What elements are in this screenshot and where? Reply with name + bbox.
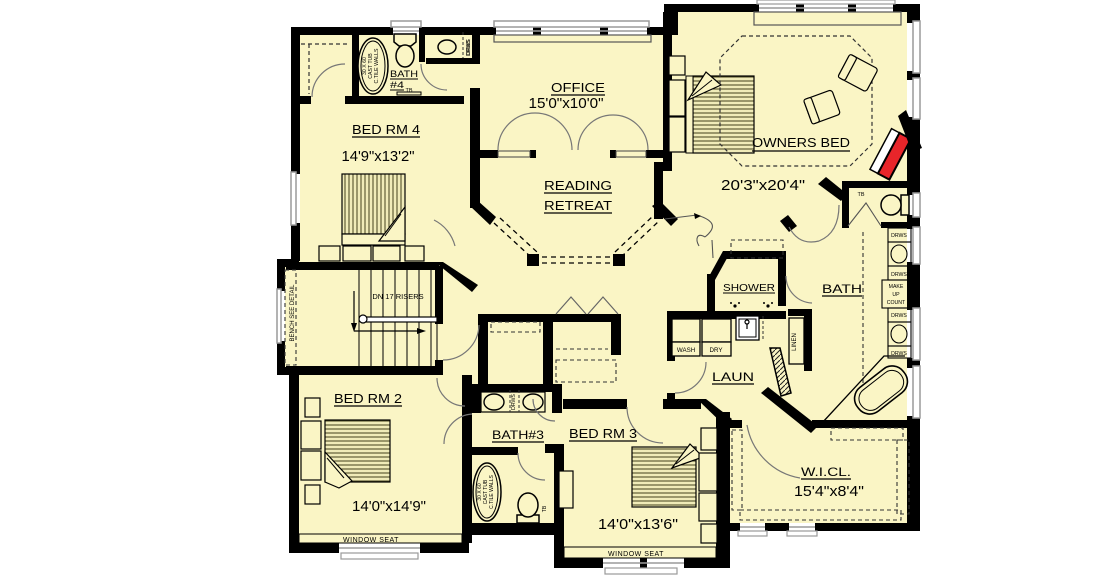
svg-text:15'4"x8'4": 15'4"x8'4": [794, 483, 864, 500]
svg-text:LINEN: LINEN: [792, 333, 798, 351]
svg-text:DRWS: DRWS: [891, 272, 907, 278]
svg-text:OFFICE: OFFICE: [551, 81, 605, 95]
svg-text:DRWS: DRWS: [466, 40, 472, 56]
svg-text:READING: READING: [544, 179, 612, 193]
svg-text:COUNT: COUNT: [887, 300, 906, 306]
svg-text:TB: TB: [857, 192, 864, 198]
svg-text:BED RM 3: BED RM 3: [569, 427, 637, 441]
svg-text:15'0"x10'0": 15'0"x10'0": [529, 95, 604, 112]
svg-text:DRWS: DRWS: [891, 313, 907, 319]
svg-text:BED RM 4: BED RM 4: [352, 123, 420, 137]
svg-text:MAKE: MAKE: [889, 284, 904, 290]
svg-text:BATH: BATH: [822, 282, 862, 296]
svg-text:DRWS: DRWS: [891, 233, 907, 239]
svg-text:14'0"x14'9": 14'0"x14'9": [352, 498, 426, 515]
svg-text:BENCH SEE DETAIL: BENCH SEE DETAIL: [290, 284, 296, 342]
svg-text:C.TILE WALLS: C.TILE WALLS: [489, 474, 495, 508]
svg-text:SHOWER: SHOWER: [723, 282, 775, 294]
svg-text:DRY: DRY: [710, 347, 723, 354]
svg-text:TB: TB: [793, 310, 800, 316]
svg-text:TB: TB: [542, 505, 548, 512]
svg-text:OWNERS BED: OWNERS BED: [752, 136, 850, 150]
svg-text:#4: #4: [390, 80, 404, 91]
svg-text:CLOS: CLOS: [545, 344, 551, 359]
svg-text:WINDOW SEAT: WINDOW SEAT: [608, 551, 664, 558]
svg-text:WASH: WASH: [677, 347, 695, 354]
svg-text:14'9"x13'2": 14'9"x13'2": [342, 148, 415, 165]
svg-text:14'0"x13'6": 14'0"x13'6": [598, 516, 678, 533]
svg-text:TB: TB: [405, 88, 412, 94]
svg-text:TB: TB: [655, 189, 662, 195]
svg-text:WINDOW SEAT: WINDOW SEAT: [343, 537, 399, 544]
svg-text:BED RM 2: BED RM 2: [334, 392, 402, 406]
svg-text:LAUN: LAUN: [712, 370, 754, 384]
svg-text:BATH: BATH: [390, 69, 418, 80]
svg-text:RETREAT: RETREAT: [544, 199, 612, 213]
svg-text:DN 17 RISERS: DN 17 RISERS: [372, 292, 423, 301]
svg-text:W.I.CL.: W.I.CL.: [801, 465, 851, 479]
svg-text:DRWS: DRWS: [511, 394, 517, 410]
svg-text:20'3"x20'4": 20'3"x20'4": [721, 177, 805, 194]
svg-text:UP: UP: [892, 292, 900, 298]
svg-text:BATH#3: BATH#3: [492, 428, 544, 442]
svg-text:C.TILE WALLS: C.TILE WALLS: [374, 48, 380, 84]
